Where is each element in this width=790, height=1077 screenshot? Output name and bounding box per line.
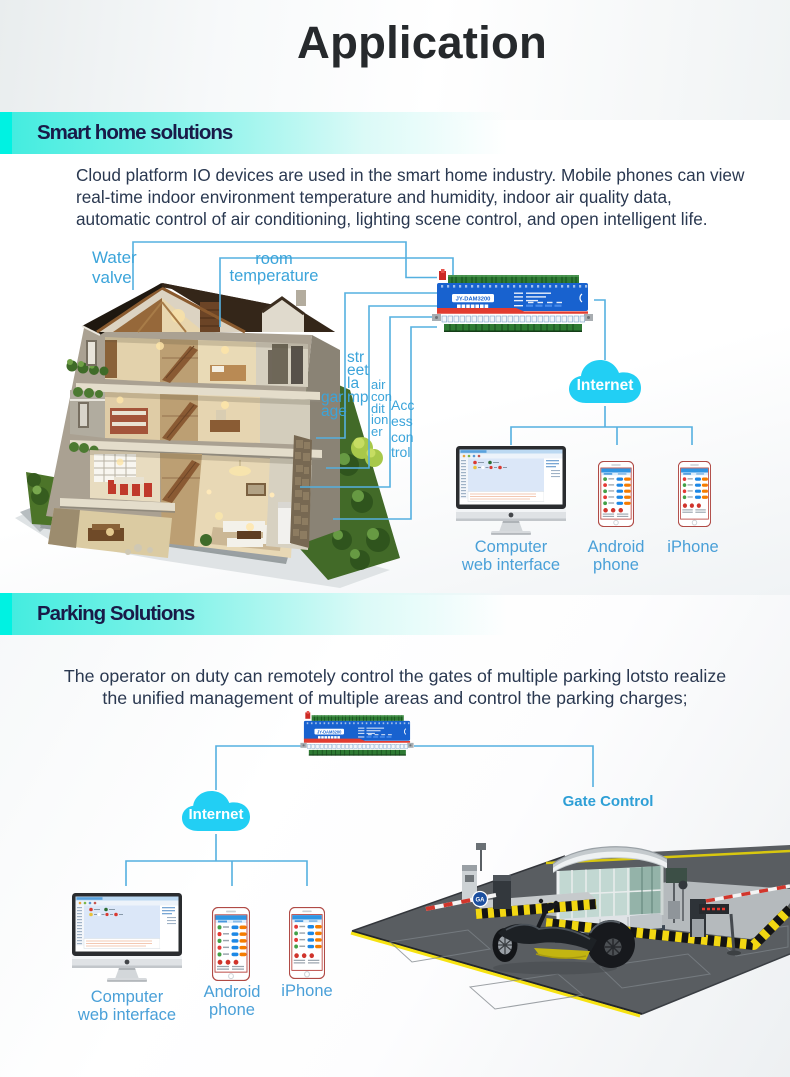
svg-text:JY-DAM3200: JY-DAM3200 [456,297,491,303]
svg-text:Internet: Internet [577,377,634,394]
svg-text:Internet: Internet [188,806,243,823]
svg-text:GA: GA [476,898,486,904]
